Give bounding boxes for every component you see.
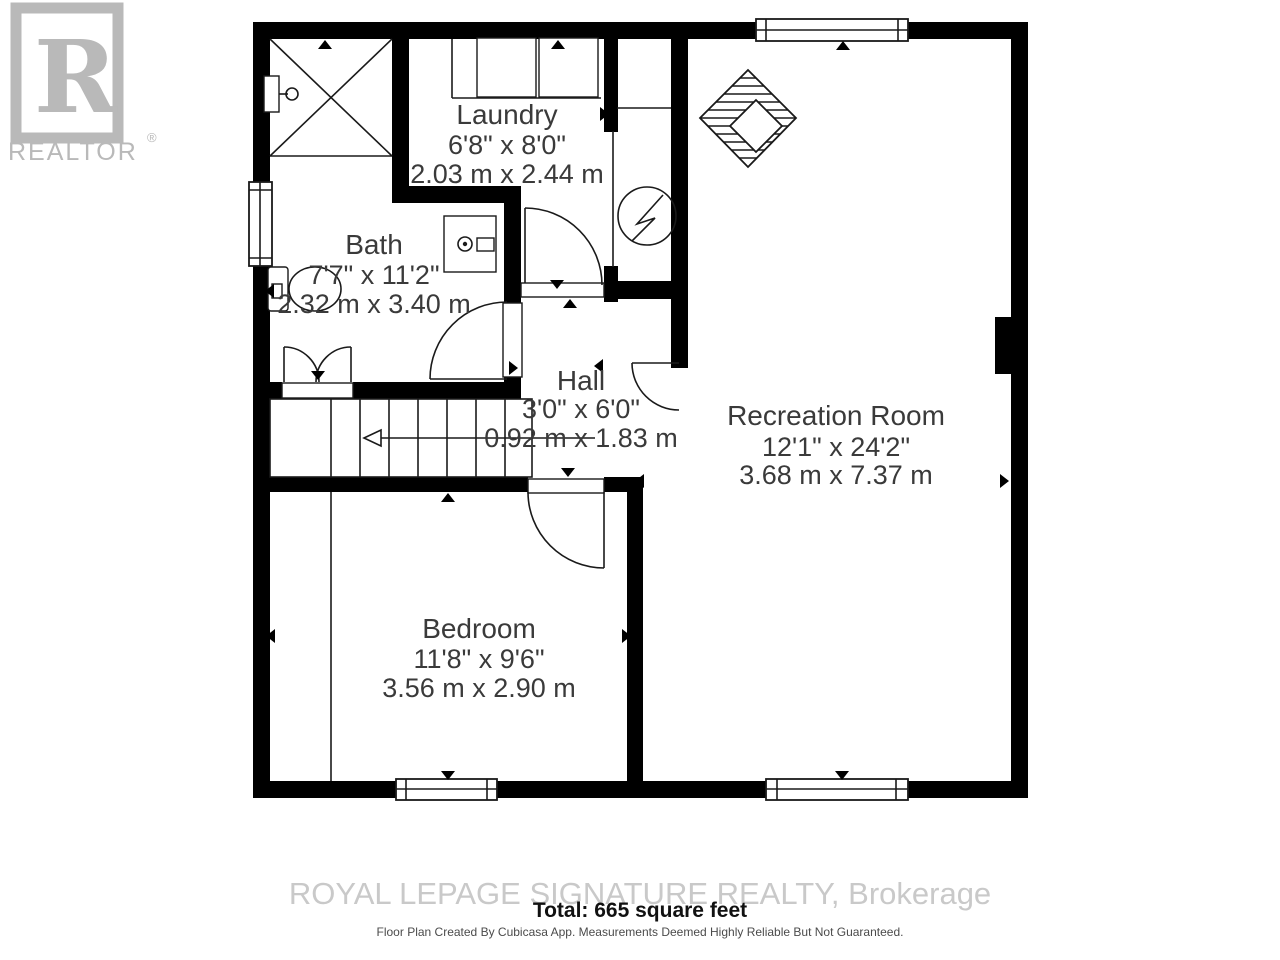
window-bath-left: [249, 182, 272, 266]
window-recreation-bottom: [766, 779, 908, 800]
floorplan-canvas: R REALTOR ®: [0, 0, 1280, 960]
realtor-logo-text: REALTOR: [8, 138, 138, 166]
room-dim-imperial: 3'0" x 6'0": [522, 394, 640, 424]
room-dim-imperial: 12'1" x 24'2": [762, 432, 910, 462]
registered-trademark-icon: ®: [147, 130, 157, 145]
room-dim-imperial: 7'7" x 11'2": [308, 260, 439, 290]
dryer-icon: [539, 38, 598, 97]
floorplan-page: R REALTOR ®: [0, 0, 1280, 960]
room-dim-metric: 3.56 m x 2.90 m: [382, 673, 576, 703]
window-bedroom-bottom: [396, 779, 497, 800]
door-arc-bedroom: [528, 492, 604, 568]
room-name: Bath: [345, 229, 403, 260]
room-name: Bedroom: [422, 613, 536, 644]
bedroom-door-threshold: [528, 479, 604, 493]
room-dim-metric: 2.32 m x 3.40 m: [277, 289, 471, 319]
sink-icon: [444, 216, 496, 272]
room-dim-metric: 0.92 m x 1.83 m: [484, 423, 678, 453]
room-name: Laundry: [456, 99, 557, 130]
chimney-notch: [995, 317, 1012, 374]
room-name: Hall: [557, 365, 605, 396]
window-recreation-top: [756, 19, 908, 41]
fireplace-icon: [696, 70, 800, 167]
shower-icon: [264, 39, 392, 156]
room-name: Recreation Room: [727, 400, 945, 431]
disclaimer-text: Floor Plan Created By Cubicasa App. Meas…: [377, 925, 904, 939]
realtor-logo: R REALTOR ®: [8, 8, 157, 166]
room-label-recreation: Recreation Room 12'1" x 24'2" 3.68 m x 7…: [727, 400, 945, 490]
room-label-bath: Bath 7'7" x 11'2" 2.32 m x 3.40 m: [277, 229, 471, 319]
washer-icon: [477, 38, 536, 97]
room-dim-imperial: 11'8" x 9'6": [413, 644, 544, 674]
water-heater-icon: [618, 187, 676, 245]
closet-door-threshold: [282, 383, 353, 398]
room-dim-metric: 3.68 m x 7.37 m: [739, 460, 933, 490]
room-dim-imperial: 6'8" x 8'0": [448, 130, 566, 160]
door-arc-laundry: [525, 208, 602, 285]
total-area-text: Total: 665 square feet: [533, 899, 747, 922]
realtor-logo-letter: R: [34, 18, 118, 136]
room-label-bedroom: Bedroom 11'8" x 9'6" 3.56 m x 2.90 m: [382, 613, 576, 703]
room-label-laundry: Laundry 6'8" x 8'0" 2.03 m x 2.44 m: [410, 99, 604, 189]
laundry-door-threshold: [521, 283, 604, 297]
footer: ROYAL LEPAGE SIGNATURE REALTY, Brokerage…: [289, 876, 991, 939]
room-dim-metric: 2.03 m x 2.44 m: [410, 159, 604, 189]
